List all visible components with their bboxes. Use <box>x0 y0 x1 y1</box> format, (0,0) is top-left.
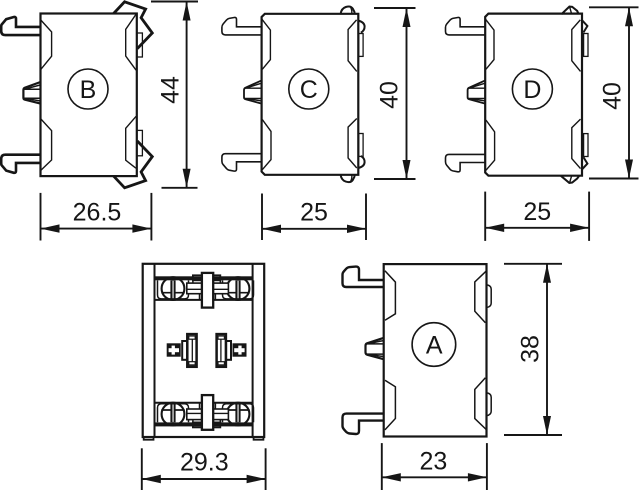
svg-text:40: 40 <box>376 81 404 109</box>
svg-text:44: 44 <box>157 76 185 104</box>
svg-text:C: C <box>300 76 318 104</box>
svg-text:23: 23 <box>419 447 447 475</box>
svg-text:A: A <box>426 332 443 360</box>
svg-text:25: 25 <box>523 198 551 226</box>
svg-text:25: 25 <box>300 198 328 226</box>
svg-text:D: D <box>523 76 541 104</box>
svg-text:29.3: 29.3 <box>180 448 229 476</box>
svg-text:B: B <box>80 76 97 104</box>
svg-text:26.5: 26.5 <box>73 198 122 226</box>
svg-text:40: 40 <box>599 82 627 110</box>
svg-text:38: 38 <box>517 335 545 363</box>
